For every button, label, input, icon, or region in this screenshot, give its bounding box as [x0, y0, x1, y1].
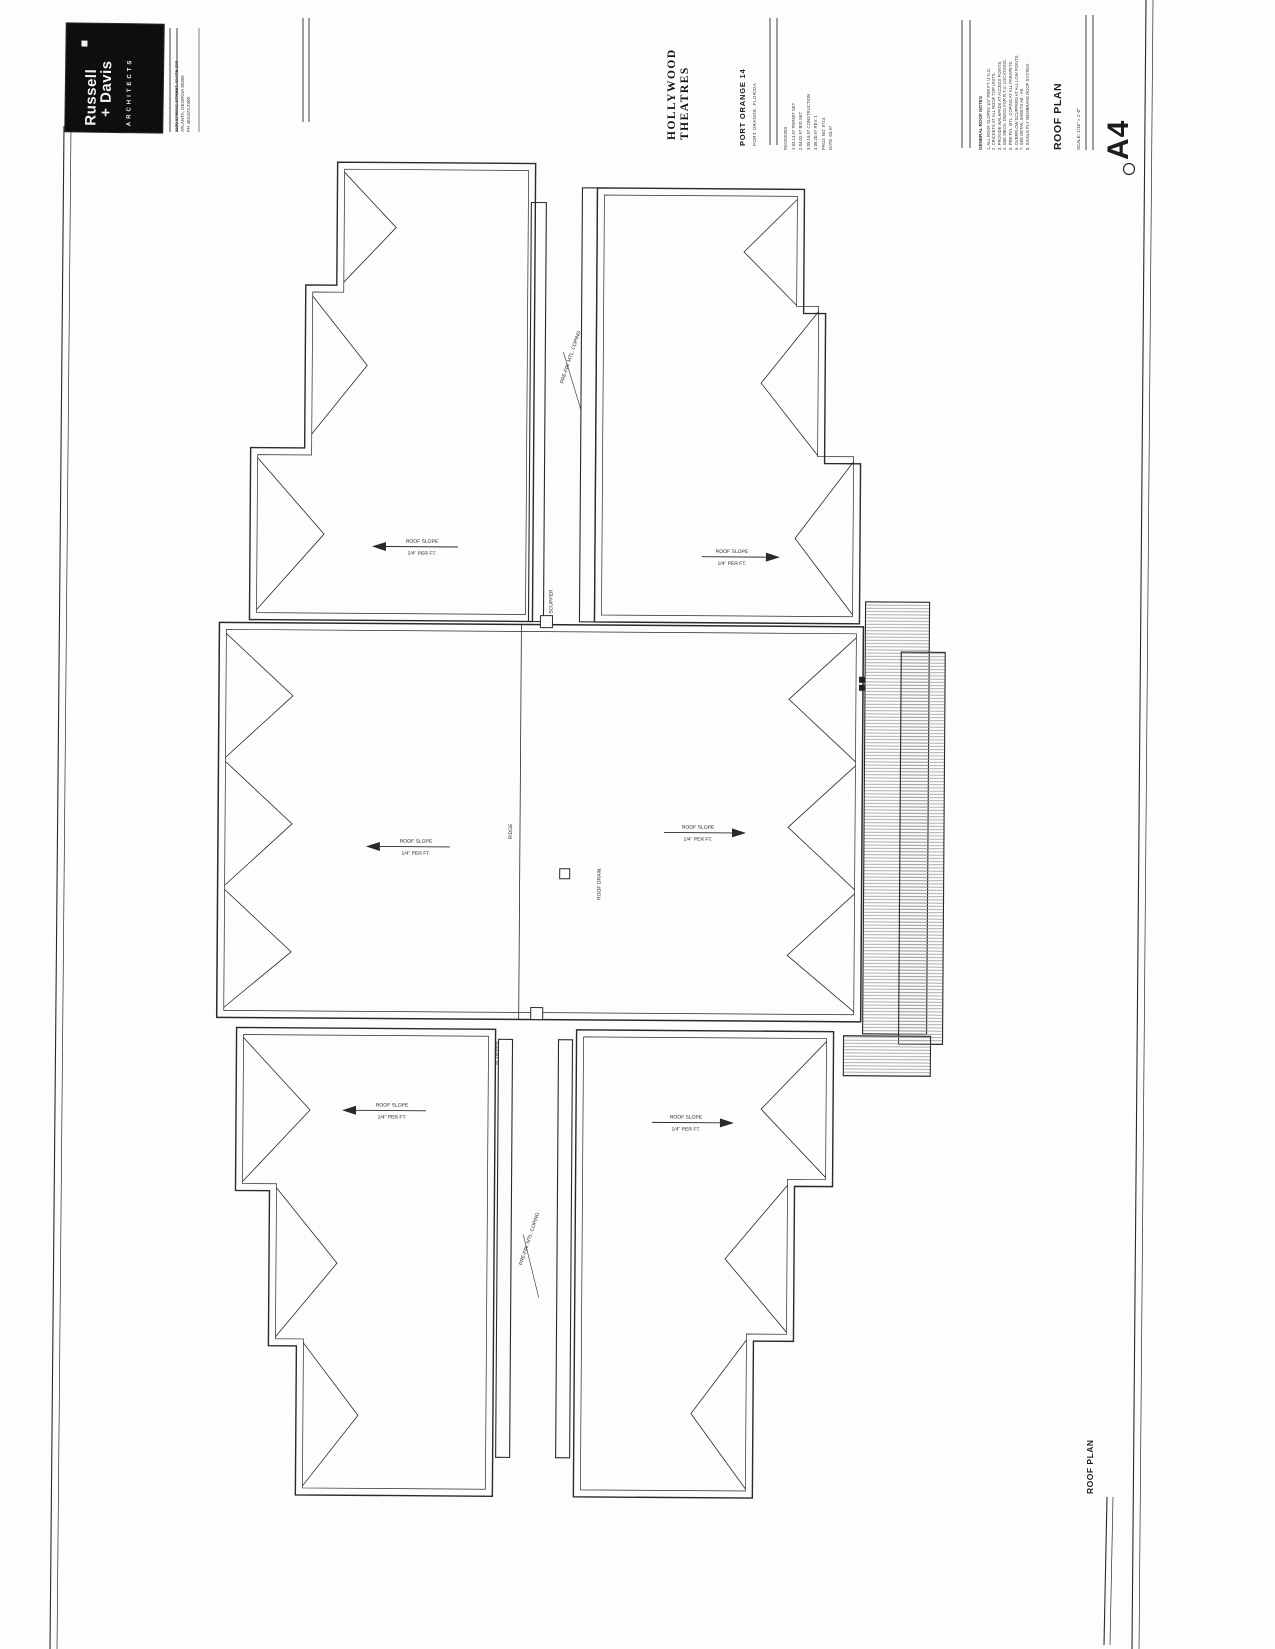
- cricket-valley-lines: [257, 458, 325, 610]
- client-name-line2: THEATRES: [679, 22, 692, 140]
- cricket-valley-lines: [302, 1343, 358, 1486]
- sheet-title: ROOF PLAN: [1052, 58, 1064, 150]
- cricket-valley-lines: [224, 889, 292, 1007]
- client-name-line1: HOLLYWOOD: [666, 22, 679, 140]
- slope-arrow-label-top: ROOF SLOPE: [406, 539, 439, 545]
- slope-arrow: ROOF SLOPE 1/4" PER FT.: [652, 1114, 734, 1133]
- revision-row: 3 05.16.97 CONSTRUCTION: [805, 18, 813, 150]
- cricket-valley-lines: [243, 1038, 311, 1182]
- lower-right-roof-section: [573, 1030, 833, 1499]
- roof-drain-annotation: ROOF DRAIN: [597, 868, 603, 900]
- sheet-number: A4: [1102, 90, 1137, 160]
- bottom-corridor: [496, 1039, 573, 1458]
- revision-row: REVISIONS: [782, 18, 790, 150]
- slope-arrows: ROOF SLOPE 1/4" PER FT. ROOF SLOPE 1/4" …: [342, 538, 780, 1133]
- logo-tagline: ARCHITECTS: [126, 30, 134, 126]
- architect-logo: Russell + Davis ARCHITECTS: [65, 23, 163, 132]
- plan-annotations: PRE-FIN. MTL. COPING PRE-FIN. MTL. COPIN…: [493, 329, 607, 1266]
- ridge-line: [519, 624, 522, 1019]
- cricket-valley-lines: [788, 765, 856, 889]
- logo-text: Russell + Davis ARCHITECTS: [83, 30, 134, 127]
- project-name-block: PORT ORANGE 14 PORT ORANGE, FLORIDA: [739, 51, 757, 146]
- notes-title: GENERAL ROOF NOTES: [978, 18, 984, 150]
- slope-arrow: ROOF SLOPE 1/4" PER FT.: [366, 838, 450, 857]
- wall-junction-block: [859, 677, 865, 683]
- revision-row: 2 04.02.97 BID SET: [797, 18, 805, 150]
- revision-row: 1 03.14.97 PERMIT SET: [790, 18, 798, 150]
- cricket-valley-lines: [744, 199, 798, 305]
- project-name: PORT ORANGE 14: [739, 51, 748, 146]
- cricket-valley-lines: [690, 1340, 746, 1489]
- cricket-valley-lines: [724, 1185, 787, 1332]
- roof-scupper-box: [540, 616, 552, 628]
- wall-junction-block: [859, 685, 865, 691]
- roof-scupper-box: [531, 1008, 543, 1020]
- cricket-valley-lines: [787, 893, 855, 1011]
- cricket-valley-lines: [225, 633, 293, 757]
- sheet-scale: SCALE: 1/16" = 1'-0": [1076, 80, 1081, 150]
- address-line: PH 404.873.2300: [186, 24, 192, 132]
- slope-arrow-label-top: ROOF SLOPE: [670, 1114, 703, 1120]
- revision-row: 4 06.20.97 REV. 1: [812, 18, 820, 150]
- roof-drain-box: [560, 869, 570, 879]
- cricket-valley-lines: [312, 296, 368, 434]
- revision-row: PROJ. NO: 9714: [820, 18, 828, 150]
- cricket-valley-lines: [344, 172, 397, 282]
- revision-circle-icon: [1124, 164, 1135, 175]
- slope-arrow-label-bottom: 1/4" PER FT.: [378, 1114, 407, 1120]
- slope-arrow-label-top: ROOF SLOPE: [376, 1102, 409, 1108]
- architect-address: 1100 SPRING STREET, SUITE 200 ATLANTA, G…: [174, 24, 192, 132]
- slope-arrow-label-top: ROOF SLOPE: [400, 839, 433, 845]
- stair-mech-hatched-area: [843, 602, 945, 1077]
- scupper-annotation: SCUPPER: [494, 1041, 500, 1066]
- coping-annotation: PRE-FIN. MTL. COPING: [518, 1212, 541, 1266]
- client-name: HOLLYWOOD THEATRES: [666, 22, 691, 140]
- title-block-rules: [170, 15, 1093, 150]
- roof-plan-drawing: ROOF SLOPE 1/4" PER FT. ROOF SLOPE 1/4" …: [0, 0, 1275, 1649]
- scupper-annotation: SCUPPER: [549, 589, 555, 614]
- upper-left-roof-section: [249, 162, 535, 622]
- slope-arrow: ROOF SLOPE 1/4" PER FT.: [372, 538, 458, 557]
- slope-arrow-label-bottom: 1/4" PER FT.: [684, 837, 713, 843]
- top-corridor: [528, 188, 597, 622]
- general-notes-block: GENERAL ROOF NOTES 1. ALL ROOF SLOPES 1/…: [978, 18, 1030, 150]
- cricket-valley-lines: [275, 1188, 337, 1337]
- revision-block: REVISIONS 1 03.14.97 PERMIT SET 2 04.02.…: [782, 18, 835, 150]
- project-location: PORT ORANGE, FLORIDA: [752, 51, 757, 146]
- slope-arrow-label-bottom: 1/4" PER FT.: [717, 561, 746, 567]
- logo-name-line2: + Davis: [98, 30, 114, 117]
- slope-arrow-label-bottom: 1/4" PER FT.: [408, 551, 437, 557]
- note-line: 8. SINGLE PLY MEMBRANE ROOF SYSTEM.: [1025, 18, 1031, 150]
- cricket-valley-lines: [761, 1041, 827, 1177]
- footer-drawing-title: ROOF PLAN: [1086, 1414, 1096, 1494]
- revision-row: DATE: 03.97: [827, 18, 835, 150]
- slope-arrow: ROOF SLOPE 1/4" PER FT.: [342, 1102, 426, 1121]
- main-auditorium-roof: [217, 613, 866, 1022]
- slope-arrow-label-bottom: 1/4" PER FT.: [401, 851, 430, 857]
- lower-left-roof-section: [233, 1027, 495, 1496]
- sheet-border-lines: [50, 0, 1153, 1649]
- slope-arrow: ROOF SLOPE 1/4" PER FT.: [702, 549, 780, 568]
- cricket-valley-lines: [225, 761, 293, 885]
- roof-plan-geometry: ROOF SLOPE 1/4" PER FT. ROOF SLOPE 1/4" …: [213, 161, 948, 1499]
- slope-arrow-label-bottom: 1/4" PER FT.: [672, 1127, 701, 1133]
- drawing-sheet: ROOF SLOPE 1/4" PER FT. ROOF SLOPE 1/4" …: [0, 0, 1275, 1649]
- ridge-annotation: RIDGE: [508, 823, 514, 840]
- slope-arrow: ROOF SLOPE 1/4" PER FT.: [664, 824, 746, 843]
- upper-right-roof-section: [594, 188, 862, 624]
- slope-arrow-label-top: ROOF SLOPE: [682, 825, 715, 831]
- slope-arrow-label-top: ROOF SLOPE: [716, 549, 749, 555]
- cricket-valley-lines: [788, 637, 856, 761]
- cricket-valley-lines: [761, 311, 819, 455]
- cricket-valley-lines: [795, 461, 854, 614]
